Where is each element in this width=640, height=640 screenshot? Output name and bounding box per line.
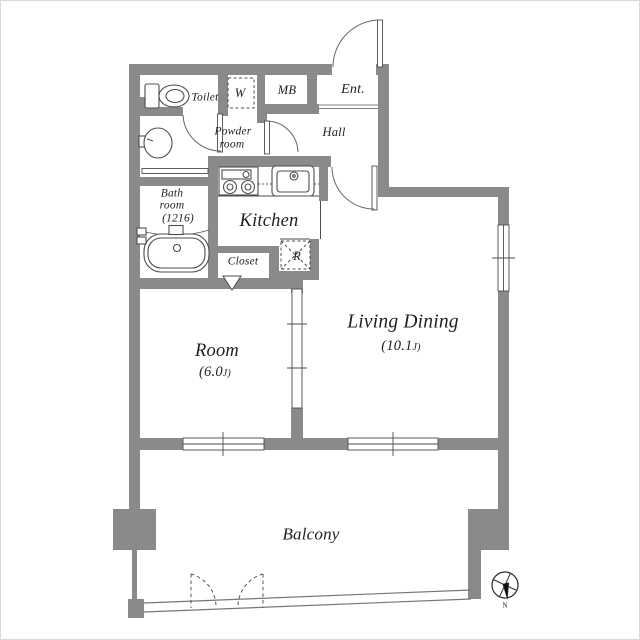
refrigerator-label: R — [293, 250, 301, 263]
room-area-unit: J) — [223, 368, 231, 379]
windows — [142, 169, 515, 457]
powder-room-label-1: Powder — [215, 126, 252, 138]
balcony-hatch-doors — [191, 574, 263, 608]
washbasin-fixture — [139, 128, 172, 158]
kitchen-sink-fixture — [272, 166, 314, 196]
balcony-label: Balcony — [282, 526, 339, 543]
room-area-label: (6.0J) — [199, 365, 231, 380]
toilet-fixture — [145, 84, 189, 108]
entrance-label: Ent. — [341, 83, 365, 97]
floor-plan-canvas — [1, 1, 640, 640]
room-label: Room — [195, 342, 239, 361]
closet-label: Closet — [228, 256, 259, 268]
bath-room-label-1: Bath — [161, 188, 184, 200]
living-dining-area-value: (10.1 — [381, 338, 412, 354]
washer-space-label: W — [235, 87, 246, 100]
hall-label: Hall — [322, 126, 345, 139]
meter-box-label: MB — [278, 84, 296, 97]
living-dining-label: Living Dining — [347, 312, 458, 332]
compass-icon — [492, 572, 518, 600]
kitchen-label: Kitchen — [240, 212, 299, 231]
stove-fixture — [219, 167, 258, 195]
bath-room-label-3: (1216) — [162, 213, 194, 225]
living-dining-area-label: (10.1J) — [381, 339, 420, 354]
sliding-partition-room-living — [287, 289, 307, 408]
powder-room-door — [265, 121, 299, 154]
balcony-railing — [144, 590, 471, 612]
floor-plan: Toilet W MB Ent. Hall Powder room Bath r… — [0, 0, 640, 640]
toilet-label: Toilet — [192, 92, 219, 104]
bath-door — [142, 169, 208, 174]
entrance-door — [333, 20, 383, 67]
hall-living-door — [332, 166, 377, 210]
window-room-balcony — [183, 432, 264, 456]
living-dining-area-unit: J) — [413, 342, 421, 353]
room-area-value: (6.0 — [199, 364, 223, 380]
powder-room-label-2: room — [220, 139, 245, 151]
window-living-side — [492, 225, 515, 291]
compass-north-label: N — [502, 603, 507, 610]
window-living-balcony — [348, 432, 438, 456]
bathtub-fixture — [137, 226, 209, 273]
bath-room-label-2: room — [160, 200, 185, 212]
